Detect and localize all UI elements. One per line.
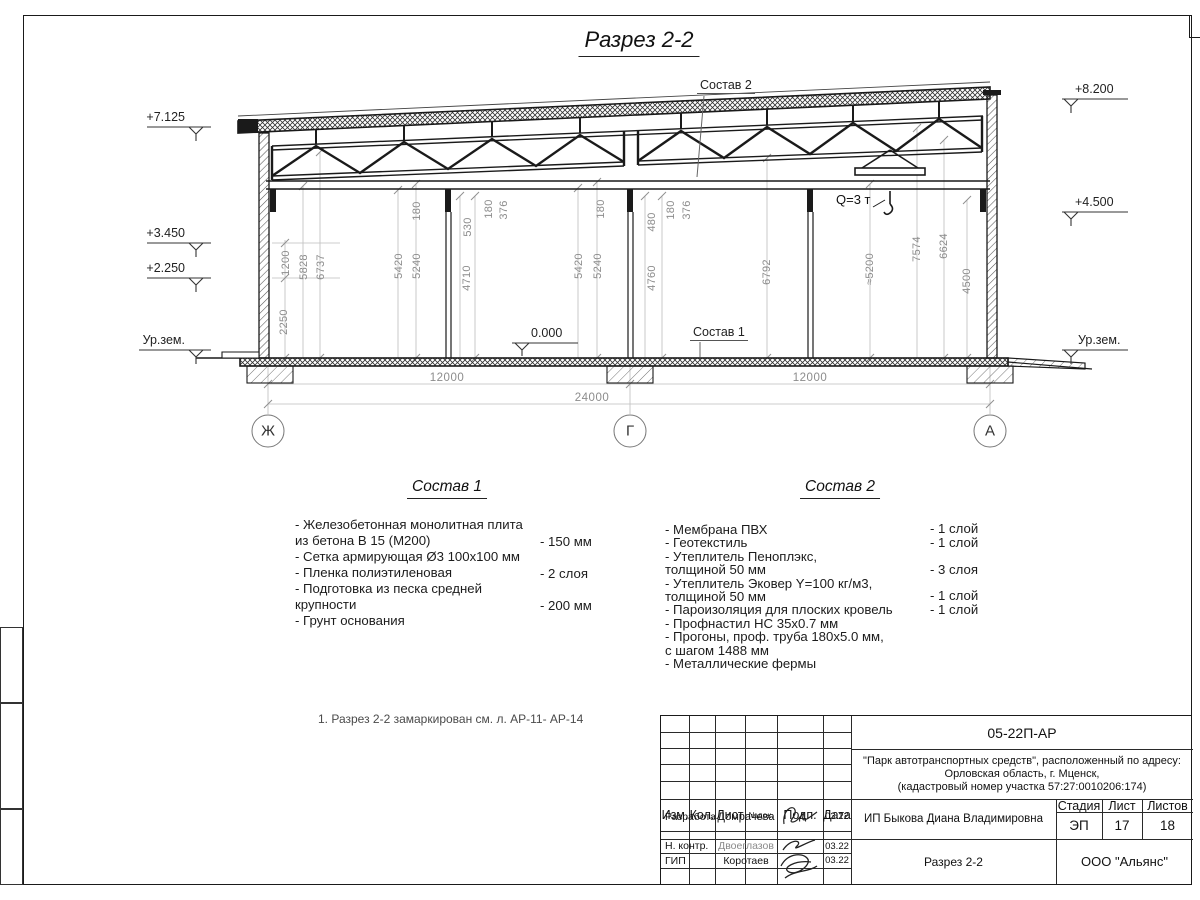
sostav1-callout: Состав 1: [690, 325, 748, 341]
tb-date-2: 03.22: [823, 839, 851, 853]
elevation-right-4500: +4.500: [1075, 195, 1114, 209]
elevation-right-8200: +8.200: [1075, 82, 1114, 96]
dim: 530: [462, 217, 474, 236]
axis-bubble-g: Г: [614, 415, 647, 448]
composition2-list: - Мембрана ПВХ- 1 слой - Геотекстиль- 1 …: [665, 523, 985, 670]
signature-1: [779, 802, 822, 830]
dim: 6737: [315, 254, 327, 280]
floor-slab: [196, 352, 1092, 383]
tb-sheets-header: Листов: [1142, 799, 1193, 812]
dim: 4710: [461, 265, 473, 291]
dim: 6792: [761, 259, 773, 285]
composition1-title: Состав 1: [407, 478, 487, 499]
tb-stage-value: ЭП: [1056, 812, 1102, 839]
list-item: - Геотекстиль- 1 слой: [665, 536, 985, 549]
dim-span-1: 12000: [430, 372, 464, 384]
dim-span-2: 12000: [793, 372, 827, 384]
drawing-sheet: Разрез 2-2 +7.125 +3.450 +2.250 Ур.зем. …: [0, 0, 1200, 900]
tb-doc-number: 05-22П-АР: [851, 716, 1193, 749]
dim: 5240: [411, 253, 423, 279]
dim: 1200: [280, 250, 292, 276]
list-item: - Прогоны, проф. труба 180х5.0 мм, с шаг…: [665, 630, 985, 657]
drawing-note: 1. Разрез 2-2 замаркирован см. л. АР-11-…: [318, 712, 583, 726]
page-title: Разрез 2-2: [578, 27, 699, 57]
dim: 180: [595, 199, 607, 218]
list-item: - Подготовка из песка средней крупности-…: [295, 581, 595, 613]
list-item: - Сетка армирующая Ø3 100х100 мм: [295, 549, 595, 565]
dim: 376: [498, 200, 510, 219]
composition1-list: - Железобетонная монолитная плита из бет…: [295, 517, 595, 629]
tb-name-1: Домрачева: [715, 802, 777, 831]
title-block: Изм. Кол. Лист №док. Подп. Дата Разработ…: [660, 715, 1192, 885]
tb-project: "Парк автотранспортных средств", располо…: [851, 749, 1193, 799]
sostav2-callout: Состав 2: [697, 78, 755, 94]
tb-role-1: Разработал: [662, 802, 715, 831]
dim: 7574: [911, 236, 923, 262]
tb-sheets-value: 18: [1142, 812, 1193, 839]
dim: 180: [483, 199, 495, 218]
roof-slab: [238, 82, 1001, 133]
list-item: - Утеплитель Эковер Y=100 кг/м3, толщино…: [665, 577, 985, 604]
tb-date-1: 03.22: [823, 802, 851, 831]
dim: 376: [681, 200, 693, 219]
tb-name-3: Коротаев: [715, 853, 777, 868]
tb-role-3: ГИП: [662, 853, 715, 868]
dim: 4500: [961, 268, 973, 294]
elevation-right-ground: Ур.зем.: [1078, 333, 1120, 347]
dim: ≈5200: [864, 253, 876, 285]
tb-date-3: 03.22: [823, 853, 851, 868]
dim: 5420: [393, 253, 405, 279]
dim: 2250: [278, 309, 290, 335]
elevation-zero: 0.000: [531, 326, 562, 340]
list-item: - Пароизоляция для плоских кровель- 1 сл…: [665, 603, 985, 616]
axis-bubble-a: А: [974, 415, 1007, 448]
ring-beam: [266, 181, 990, 212]
tb-drawing-title: Разрез 2-2: [851, 839, 1056, 884]
tb-role-2: Н. контр.: [662, 839, 715, 853]
dim: 480: [646, 212, 658, 231]
tb-sheet-value: 17: [1102, 812, 1142, 839]
dim: 5828: [298, 254, 310, 280]
leader-lines: [697, 96, 704, 357]
list-item: - Железобетонная монолитная плита из бет…: [295, 517, 595, 549]
list-item: - Профнастил НС 35х0.7 мм: [665, 617, 985, 630]
dim: 180: [665, 200, 677, 219]
elevation-left-7125: +7.125: [123, 110, 185, 124]
tb-client: ИП Быкова Диана Владимировна: [851, 799, 1056, 839]
list-item: - Металлические фермы: [665, 657, 985, 670]
dim: 5420: [573, 253, 585, 279]
list-item: - Грунт основания: [295, 613, 595, 629]
tb-company: ООО "Альянс": [1056, 839, 1193, 884]
dim: 5240: [592, 253, 604, 279]
elevation-left-2250: +2.250: [123, 261, 185, 275]
tb-sheet-header: Лист: [1102, 799, 1142, 812]
elevation-left-3450: +3.450: [123, 226, 185, 240]
list-item: - Пленка полиэтиленовая- 2 слоя: [295, 565, 595, 581]
crane-capacity-label: Q=3 т: [836, 192, 871, 207]
signature-2: [777, 836, 823, 882]
tb-stage-header: Стадия: [1056, 799, 1102, 812]
elevation-left-ground: Ур.зем.: [123, 333, 185, 347]
tb-name-2: Двоеглазов: [715, 839, 777, 853]
list-item: - Утеплитель Пеноплэкс, толщиной 50 мм- …: [665, 550, 985, 577]
axis-bubble-zh: Ж: [252, 415, 285, 448]
dim: 6624: [938, 233, 950, 259]
dim-total: 24000: [575, 392, 609, 404]
dim: 180: [411, 201, 423, 220]
composition2-title: Состав 2: [800, 478, 880, 499]
dim: 4760: [646, 265, 658, 291]
